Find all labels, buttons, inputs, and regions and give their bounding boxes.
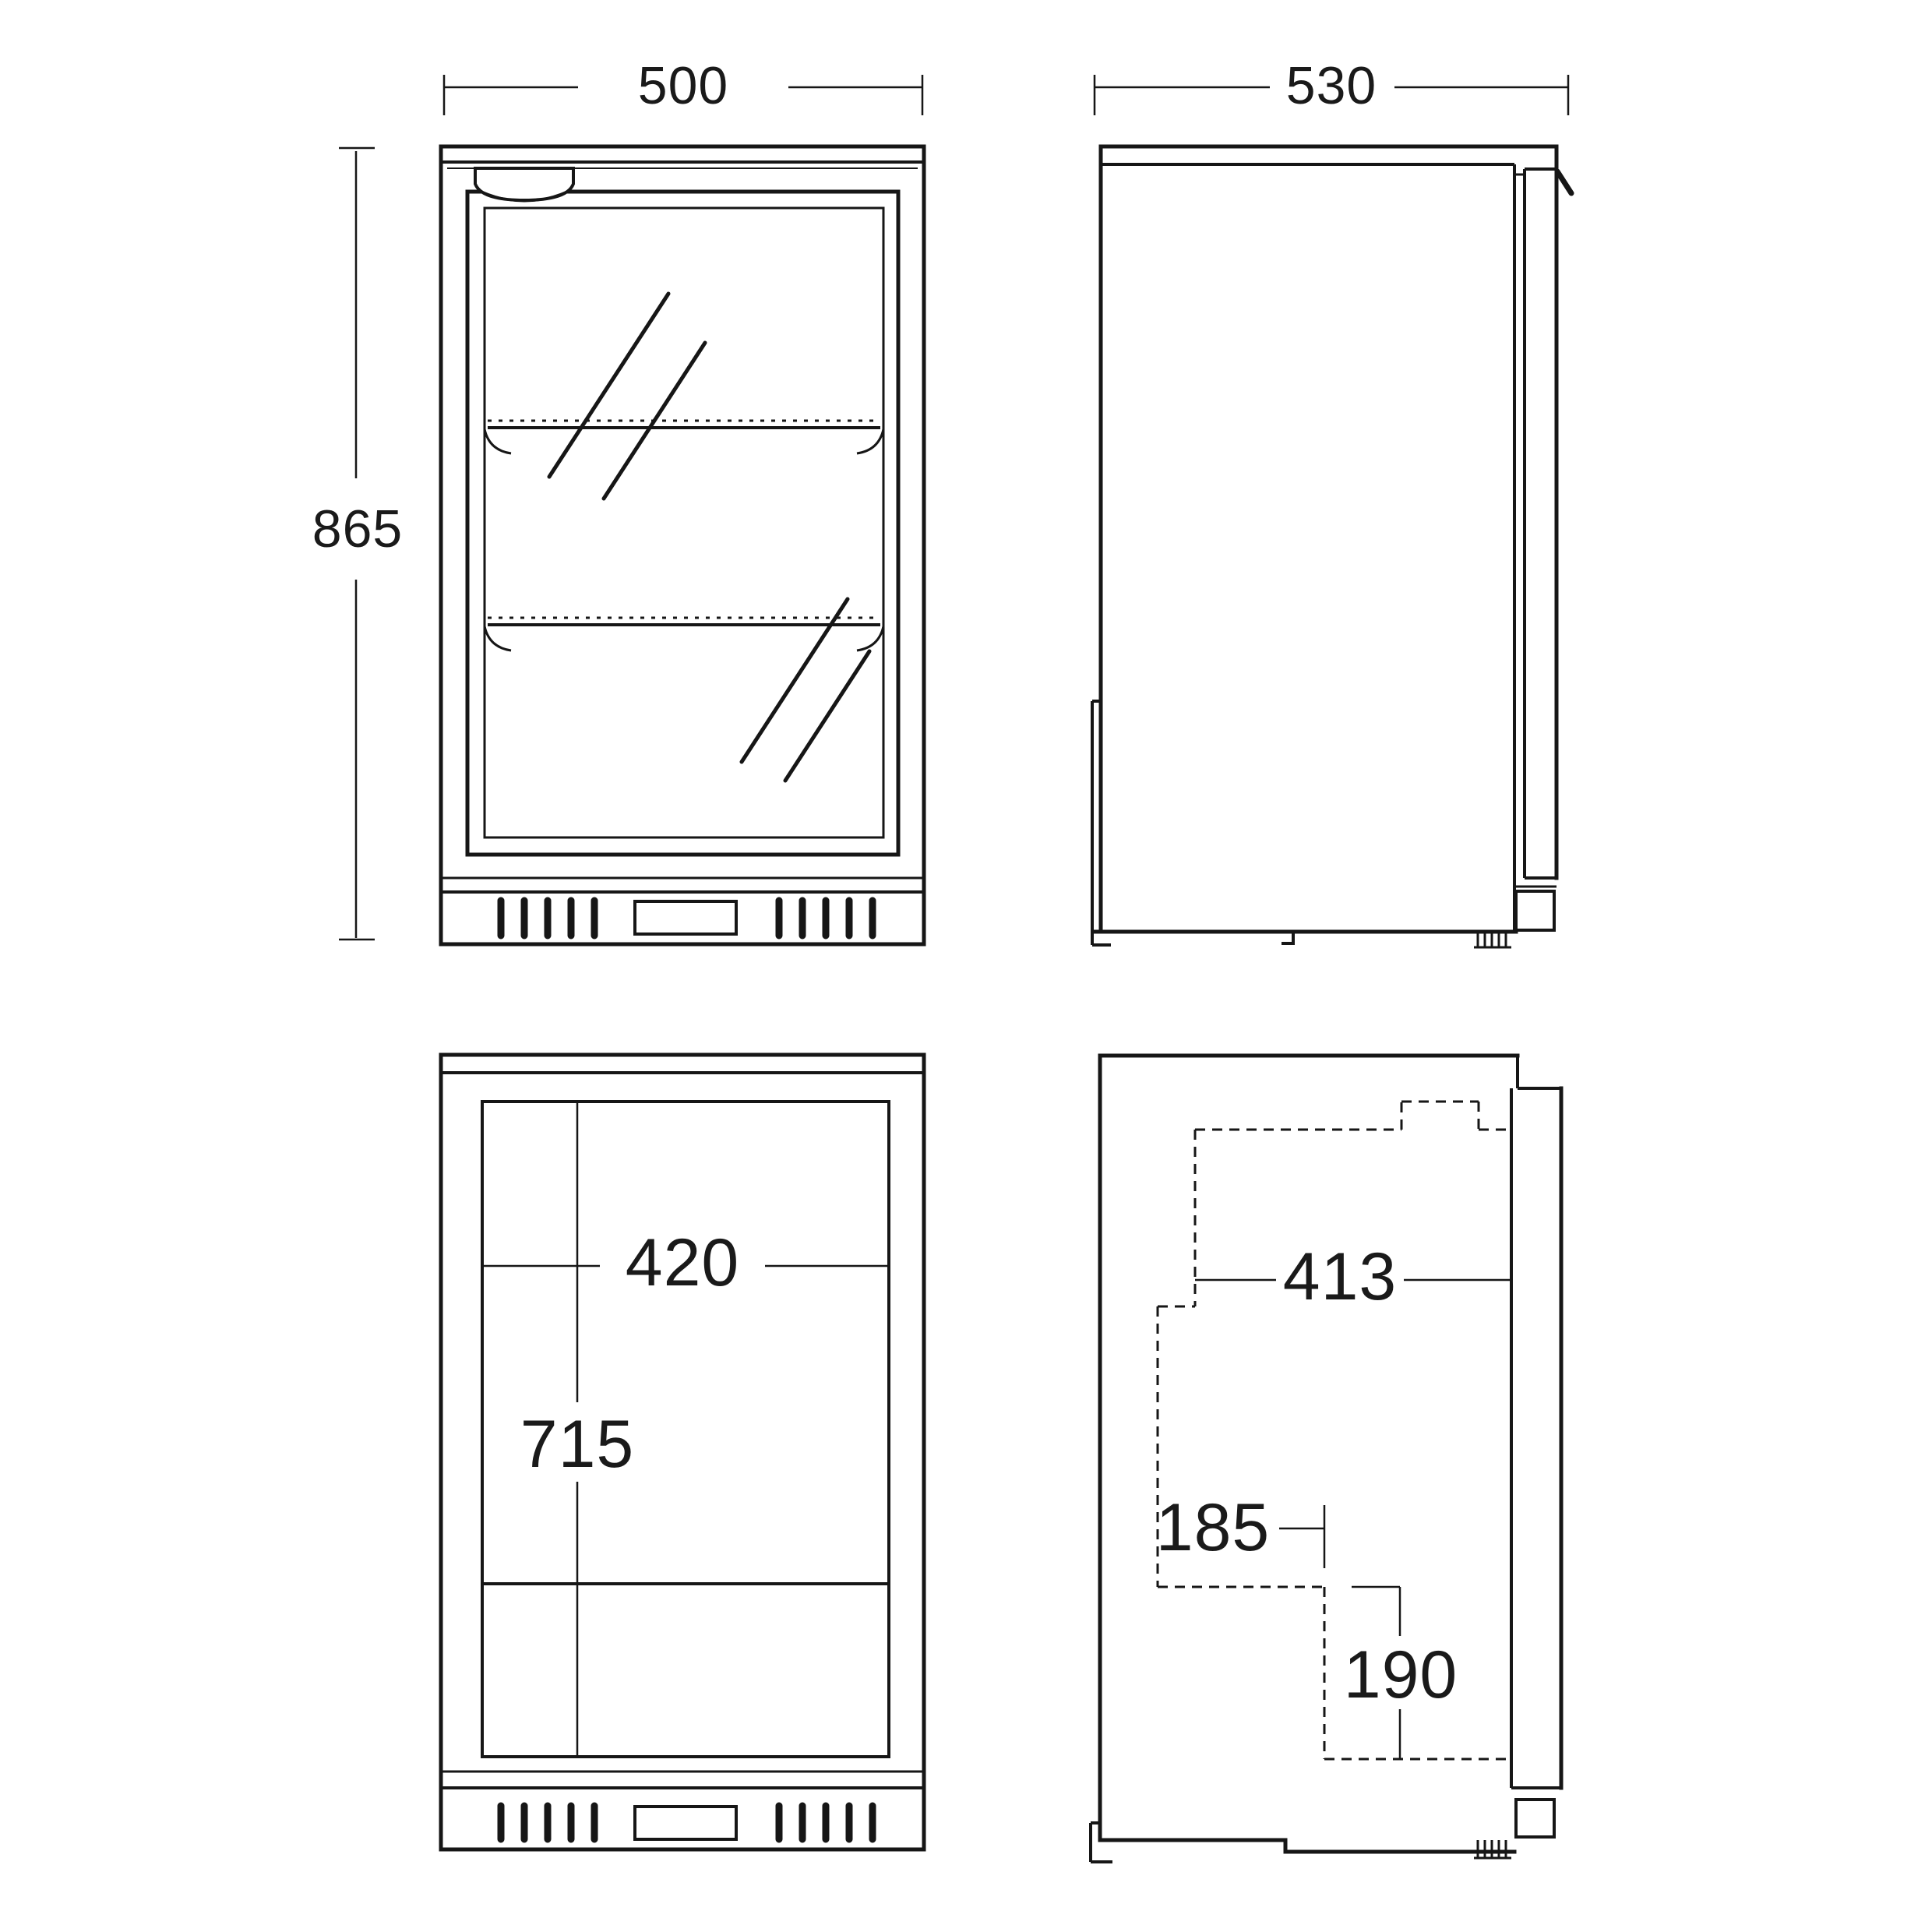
cabinet-outline: [441, 146, 924, 944]
door-frame: [467, 192, 898, 855]
step-depth-dimension-lines: [1279, 1505, 1324, 1568]
shelf-upper: [485, 421, 883, 453]
front-interior-view: 420 715: [441, 1055, 924, 1849]
vent-slots-right: [779, 901, 873, 936]
control-panel: [635, 901, 736, 934]
width-dimension-500: 500: [444, 56, 922, 115]
step-depth-dimension-185: 185: [1156, 1490, 1324, 1568]
height-dimension-865: 865: [312, 148, 403, 940]
glass-reflection-upper: [549, 294, 705, 499]
shelf-upper-brackets: [485, 429, 883, 453]
height-dimension-label: 865: [312, 499, 403, 559]
cabinet-outline: [441, 1055, 924, 1849]
vent-slots-left: [501, 901, 594, 936]
front-foot-hatch: [1474, 1840, 1511, 1858]
vent-slots-left: [501, 1806, 594, 1839]
step-height-dimension-label: 190: [1344, 1638, 1458, 1712]
dimension-drawing: 500 865 530: [0, 0, 1932, 1932]
vent-slots-right: [779, 1806, 873, 1839]
inner-depth-dimension-label: 413: [1283, 1239, 1398, 1314]
cavity-dashed-outline: [1158, 1102, 1511, 1759]
mid-foot: [1282, 932, 1293, 945]
inner-width-dimension-420: 420: [482, 1225, 889, 1300]
depth-dimension-label: 530: [1286, 56, 1377, 115]
front-foot-hatch: [1474, 933, 1511, 947]
depth-dimension-530: 530: [1095, 56, 1568, 115]
bottom-edge: [1100, 1840, 1514, 1852]
door-handle: [1557, 171, 1571, 193]
cavity-floor-step-dashed: [1158, 1587, 1511, 1759]
step-depth-dimension-label: 185: [1156, 1490, 1271, 1565]
side-interior-view: 413 185 190: [1091, 1056, 1561, 1862]
inner-width-dimension-label: 420: [626, 1225, 740, 1300]
side-exterior-view: 530: [1092, 56, 1571, 947]
door-glass: [485, 208, 883, 837]
control-panel: [635, 1807, 736, 1839]
cavity-top-dashed: [1195, 1102, 1511, 1130]
width-dimension-label: 500: [638, 56, 728, 115]
top-front-step: [1518, 1056, 1561, 1088]
front-exterior-view: 500 865: [312, 56, 924, 944]
step-height-dimension-190: 190: [1344, 1587, 1458, 1759]
kick-box: [1516, 891, 1554, 930]
inner-height-dimension-715: 715: [520, 1102, 635, 1757]
inner-height-dimension-label: 715: [520, 1407, 635, 1482]
inner-depth-dimension-413: 413: [1195, 1239, 1511, 1314]
drawing-canvas: 500 865 530: [0, 0, 1932, 1932]
kick-box: [1516, 1800, 1554, 1837]
